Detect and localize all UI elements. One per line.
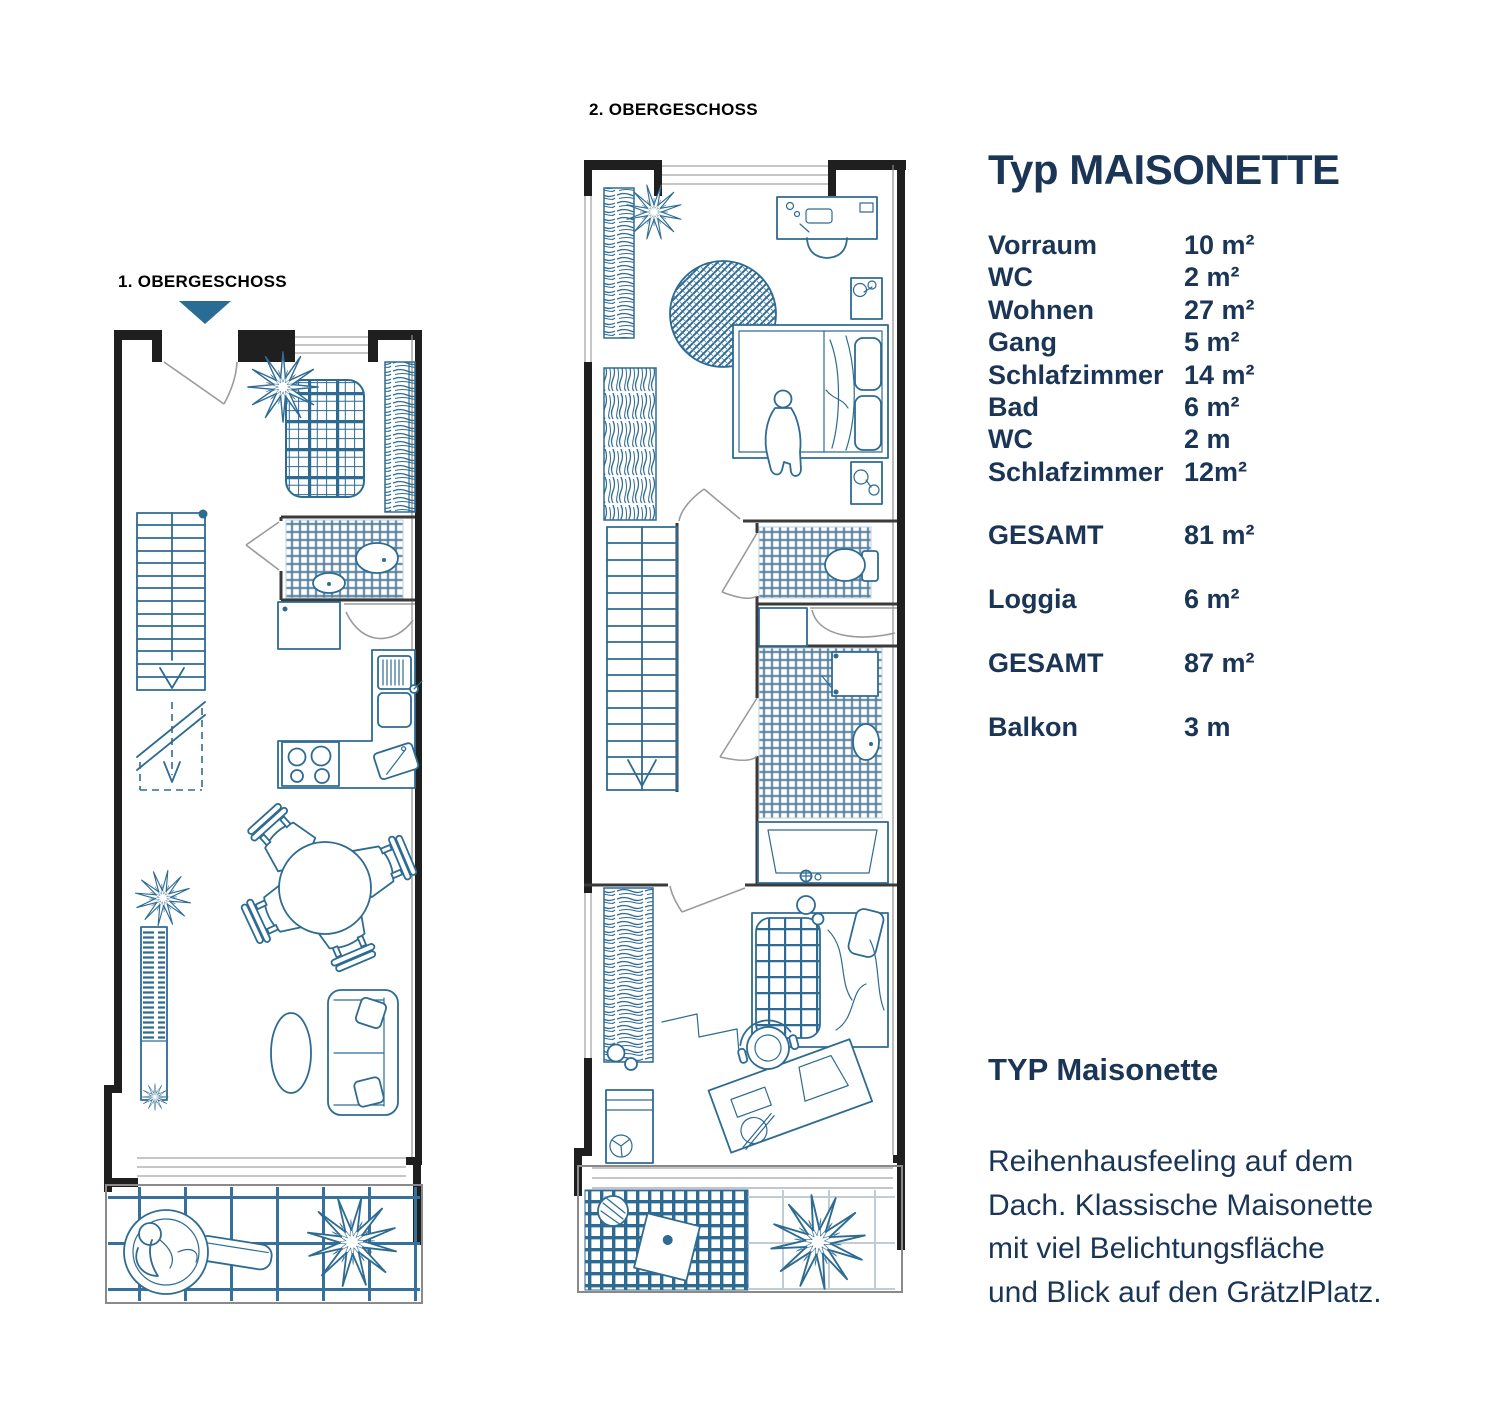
total-name: Balkon xyxy=(988,711,1184,743)
floorplan-1og-label: 1. OBERGESCHOSS xyxy=(118,272,287,292)
brochure-page: 1. OBERGESCHOSS 2. OBERGESCHOSS Typ MAIS… xyxy=(0,0,1500,1413)
floorplan-2og xyxy=(574,160,906,1295)
loggia xyxy=(106,1185,422,1303)
room-area: 12m² xyxy=(1184,456,1247,488)
double-bed xyxy=(733,325,888,476)
desk-bedroom1 xyxy=(777,197,877,258)
description-line: Reihenhausfeeling auf dem xyxy=(988,1140,1382,1184)
room-area: 2 m² xyxy=(1184,261,1240,293)
page-title: Typ MAISONETTE xyxy=(988,146,1340,194)
wardrobe-bedroom2 xyxy=(604,888,653,1070)
nightstand xyxy=(851,462,882,504)
shelf-bedroom2 xyxy=(606,1090,653,1163)
room-name: Wohnen xyxy=(988,294,1184,326)
bookshelf xyxy=(141,927,169,1111)
wardrobe-hall xyxy=(385,362,415,512)
floorplan-1og xyxy=(104,330,422,1303)
down-triangle-icon xyxy=(179,301,231,324)
room-row: Gang5 m² xyxy=(988,326,1255,358)
room-area: 27 m² xyxy=(1184,294,1255,326)
total-area: 87 m² xyxy=(1184,647,1255,679)
room-name: Vorraum xyxy=(988,229,1184,261)
storage-niche xyxy=(759,608,897,646)
room-name: WC xyxy=(988,261,1184,293)
desk-bedroom2 xyxy=(709,1039,873,1154)
wc-2og xyxy=(759,527,878,598)
subheading: TYP Maisonette xyxy=(988,1052,1218,1088)
total-row: Loggia6 m² xyxy=(988,583,1240,615)
room-name: Bad xyxy=(988,391,1184,423)
room-name: Gang xyxy=(988,326,1184,358)
dining-table xyxy=(239,800,419,974)
room-row: Bad6 m² xyxy=(988,391,1255,423)
bathroom-1og xyxy=(246,520,403,598)
total-name: GESAMT xyxy=(988,647,1184,679)
total-row: GESAMT81 m² xyxy=(988,519,1255,551)
bathtub xyxy=(758,822,888,883)
room-name: WC xyxy=(988,423,1184,455)
total-area: 6 m² xyxy=(1184,583,1240,615)
room-row: WC2 m xyxy=(988,423,1255,455)
room-row: WC2 m² xyxy=(988,261,1255,293)
room-row: Schlafzimmer12m² xyxy=(988,456,1255,488)
room-name: Schlafzimmer xyxy=(988,359,1184,391)
entry-door-1og xyxy=(164,362,237,404)
stairs-2og xyxy=(607,527,677,790)
nightstand xyxy=(851,278,882,319)
bed-bedroom2 xyxy=(752,896,888,1047)
total-row: Balkon3 m xyxy=(988,711,1231,743)
description-line: mit viel Belichtungsfläche xyxy=(988,1227,1382,1271)
room-area: 5 m² xyxy=(1184,326,1240,358)
room-row: Schlafzimmer14 m² xyxy=(988,359,1255,391)
stairs-1og xyxy=(137,510,208,791)
kitchen xyxy=(278,602,422,788)
total-row: GESAMT87 m² xyxy=(988,647,1255,679)
room-name: Schlafzimmer xyxy=(988,456,1184,488)
total-name: GESAMT xyxy=(988,519,1184,551)
description-line: Dach. Klassische Maisonette xyxy=(988,1184,1382,1228)
room-row: Wohnen27 m² xyxy=(988,294,1255,326)
doors-2og xyxy=(670,489,757,912)
room-area: 2 m xyxy=(1184,423,1231,455)
sofa xyxy=(328,990,398,1115)
room-row: Vorraum10 m² xyxy=(988,229,1255,261)
description: Reihenhausfeeling auf dem Dach. Klassisc… xyxy=(988,1140,1382,1314)
bathroom-2og xyxy=(759,648,882,818)
total-area: 81 m² xyxy=(1184,519,1255,551)
wardrobe-top xyxy=(604,188,634,338)
total-name: Loggia xyxy=(988,583,1184,615)
room-area: 6 m² xyxy=(1184,391,1240,423)
total-area: 3 m xyxy=(1184,711,1231,743)
living-rug xyxy=(271,1013,311,1093)
room-area-list: Vorraum10 m² WC2 m² Wohnen27 m² Gang5 m²… xyxy=(988,229,1255,488)
balcony xyxy=(578,1166,902,1295)
room-area: 14 m² xyxy=(1184,359,1255,391)
floorplan-2og-label: 2. OBERGESCHOSS xyxy=(589,100,758,120)
plant-icon xyxy=(124,859,203,938)
description-line: und Blick auf den GrätzlPlatz. xyxy=(988,1271,1382,1315)
wardrobe-mid xyxy=(604,368,656,520)
room-area: 10 m² xyxy=(1184,229,1255,261)
